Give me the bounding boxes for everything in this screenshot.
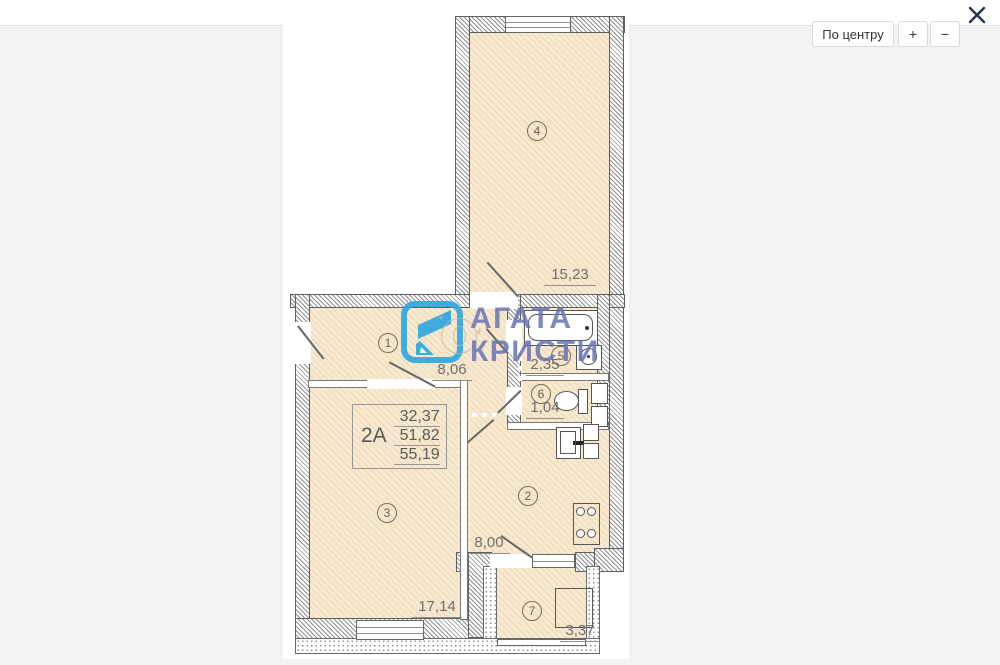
room-4-number: 4	[534, 124, 541, 138]
close-icon	[967, 5, 987, 25]
close-button[interactable]	[965, 3, 989, 27]
balcony-door-opening	[490, 554, 532, 568]
unit-living-area: 32,37	[394, 408, 440, 427]
room-2-number: 2	[525, 489, 532, 503]
room-1-number: 1	[385, 336, 392, 350]
stove-icon	[573, 503, 600, 545]
zoom-out-button[interactable]: −	[930, 21, 960, 47]
room-7-number-badge: 7	[522, 601, 542, 621]
compass-tick: +	[438, 312, 444, 324]
shaft-box	[591, 383, 608, 404]
unit-summary-box: 2А 32,37 51,82 55,19	[352, 404, 447, 469]
threshold-line	[462, 413, 496, 417]
floorplan-viewer-modal: 1 2 3 4 5 6 7 8,06 8,00 17,14 15,23 2,35…	[0, 0, 1000, 665]
wall-segment	[455, 16, 470, 308]
room-7-area-label: 3,37	[560, 623, 600, 642]
room-7-number: 7	[529, 604, 536, 618]
entrance-door-opening	[294, 322, 311, 364]
room-3-area-label: 17,14	[412, 599, 462, 618]
room-4-fill	[469, 32, 609, 294]
room-3-number: 3	[384, 506, 391, 520]
counter-box	[583, 424, 599, 441]
room-1-area-label: 8,06	[432, 362, 472, 381]
window	[356, 620, 424, 640]
window	[505, 16, 571, 33]
room-2-area-label: 8,00	[468, 535, 510, 554]
room-3-number-badge: 3	[377, 503, 397, 523]
room-2-number-badge: 2	[518, 486, 538, 506]
center-button[interactable]: По центру	[812, 21, 894, 47]
zoom-in-button[interactable]: +	[898, 21, 928, 47]
room-1-number-badge: 1	[378, 333, 398, 353]
brand-watermark: АГАТА КРИСТИ	[470, 302, 600, 368]
unit-total-area: 55,19	[394, 446, 440, 465]
counter-box	[583, 443, 599, 459]
room-4-number-badge: 4	[527, 121, 547, 141]
brand-line-1: АГАТА	[470, 302, 600, 335]
sink-icon	[556, 427, 581, 459]
toilet-icon	[578, 389, 588, 414]
unit-label: 2А	[361, 424, 387, 448]
room-4-area-label: 15,23	[544, 267, 596, 286]
window	[532, 554, 575, 568]
room-6-area-label: 1,04	[526, 400, 564, 419]
unit-partial-area: 51,82	[394, 427, 440, 446]
brand-line-2: КРИСТИ	[470, 335, 600, 368]
